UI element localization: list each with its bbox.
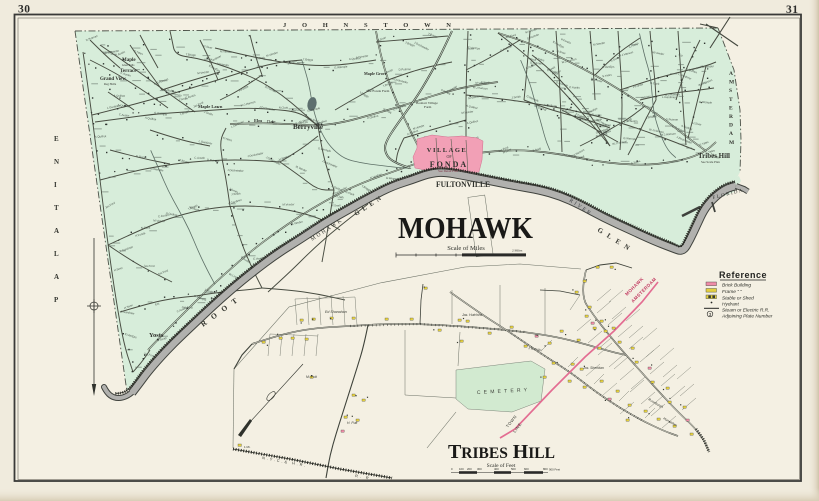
- svg-text:Jas.Ford: Jas.Ford: [143, 264, 154, 268]
- svg-text:1 Mi.: 1 Mi.: [244, 445, 251, 449]
- svg-text:T.Briggs: T.Briggs: [303, 57, 314, 62]
- svg-text:Reg Holla: Reg Holla: [104, 82, 117, 86]
- svg-text:MOHAWK: MOHAWK: [398, 211, 533, 245]
- svg-text:300: 300: [477, 467, 482, 471]
- svg-text:D.Putman: D.Putman: [398, 67, 411, 71]
- svg-text:Stable or Shed: Stable or Shed: [722, 296, 754, 302]
- svg-text:500: 500: [511, 467, 516, 471]
- svg-text:A: A: [54, 273, 59, 281]
- svg-text:E: E: [54, 135, 59, 143]
- svg-text:M.Veeder: M.Veeder: [153, 218, 165, 223]
- svg-text:400: 400: [494, 467, 499, 471]
- svg-text:Dale: Dale: [267, 119, 276, 124]
- svg-text:D.Putman: D.Putman: [666, 118, 679, 122]
- svg-text:Brick Building: Brick Building: [722, 283, 751, 289]
- svg-text:P: P: [54, 296, 59, 304]
- svg-text:I: I: [54, 181, 57, 189]
- svg-text:Terrace: Terrace: [120, 69, 137, 74]
- svg-text:M. Putt: M. Putt: [306, 375, 318, 379]
- svg-text:C.Austin: C.Austin: [194, 156, 205, 160]
- svg-text:C.Austin: C.Austin: [569, 85, 580, 90]
- svg-text:H. Putt: H. Putt: [347, 421, 358, 425]
- svg-text:Maple Grove: Maple Grove: [364, 71, 387, 76]
- svg-text:Tribes Hill: Tribes Hill: [698, 152, 730, 160]
- svg-text:Berryville: Berryville: [293, 123, 323, 131]
- svg-text:Yosts: Yosts: [149, 332, 164, 339]
- svg-text:Steam or Electric R.R.: Steam or Electric R.R.: [722, 308, 769, 314]
- svg-text:N.Clark: N.Clark: [279, 106, 289, 110]
- svg-text:A: A: [729, 131, 733, 137]
- svg-text:Ed Shanahan: Ed Shanahan: [325, 310, 347, 314]
- svg-text:FULTONVILLE: FULTONVILLE: [436, 180, 490, 189]
- svg-text:M.Veeder: M.Veeder: [702, 64, 714, 69]
- svg-text:2 Miles: 2 Miles: [512, 249, 523, 253]
- svg-text:M: M: [729, 140, 735, 146]
- svg-text:Maple Lawn: Maple Lawn: [198, 104, 223, 109]
- svg-text:Farm: Farm: [424, 105, 432, 109]
- svg-text:JOHNSTOWN: JOHNSTOWN: [283, 22, 465, 29]
- svg-text:800: 800: [543, 467, 548, 471]
- svg-text:Adjoining Plate Number: Adjoining Plate Number: [721, 314, 773, 320]
- svg-text:T: T: [54, 204, 59, 212]
- svg-text:A: A: [729, 71, 733, 77]
- svg-text:A.Quilhot: A.Quilhot: [349, 56, 361, 61]
- svg-text:Glen Falls: Glen Falls: [122, 63, 135, 67]
- svg-text:F.Snell: F.Snell: [481, 80, 490, 84]
- svg-text:31: 31: [786, 4, 799, 16]
- svg-text:S: S: [729, 88, 732, 94]
- svg-text:A: A: [54, 227, 59, 235]
- svg-text:Jas.Ford: Jas.Ford: [182, 305, 194, 310]
- svg-text:TRIBES HILL: TRIBES HILL: [448, 441, 555, 463]
- svg-text:200: 200: [467, 467, 472, 471]
- svg-text:OF: OF: [446, 154, 452, 159]
- svg-text:D: D: [729, 123, 733, 129]
- svg-text:N: N: [54, 158, 59, 166]
- svg-text:The Fonda Farm: The Fonda Farm: [366, 89, 390, 93]
- svg-text:M: M: [729, 80, 735, 86]
- svg-text:Elm: Elm: [254, 118, 262, 123]
- svg-text:A.Quilhot: A.Quilhot: [113, 94, 125, 98]
- svg-text:Jos. Sheridan: Jos. Sheridan: [582, 366, 604, 370]
- svg-text:A.Quilhot: A.Quilhot: [95, 134, 107, 139]
- svg-text:600: 600: [524, 467, 529, 471]
- svg-text:M.Veeder: M.Veeder: [282, 202, 294, 206]
- svg-text:See Scale Plan: See Scale Plan: [701, 160, 720, 164]
- svg-text:M.Veeder: M.Veeder: [220, 49, 232, 54]
- svg-text:W.J.Hanson: W.J.Hanson: [665, 92, 681, 96]
- svg-text:See Detail Plan: See Detail Plan: [438, 169, 458, 173]
- svg-text:100: 100: [459, 467, 464, 471]
- svg-text:30: 30: [18, 4, 31, 16]
- svg-text:Est.: Est.: [603, 130, 609, 135]
- svg-text:E.VanEps: E.VanEps: [602, 65, 615, 69]
- svg-text:Reference: Reference: [719, 270, 767, 280]
- svg-text:Frame ” ”: Frame ” ”: [722, 289, 742, 295]
- svg-text:Jas. Hutchins: Jas. Hutchins: [461, 313, 483, 317]
- svg-text:Scale of Miles: Scale of Miles: [447, 245, 485, 252]
- svg-text:VILLAGE: VILLAGE: [427, 147, 467, 154]
- svg-text:L: L: [54, 250, 59, 258]
- svg-text:N.Clark: N.Clark: [141, 226, 151, 230]
- svg-text:900 Feet: 900 Feet: [549, 468, 560, 472]
- svg-text:FONDA: FONDA: [430, 160, 468, 169]
- svg-text:Hydrant: Hydrant: [722, 302, 739, 308]
- svg-text:F.Snell: F.Snell: [332, 203, 341, 207]
- svg-text:E: E: [729, 105, 733, 111]
- svg-text:J.Dockstader: J.Dockstader: [227, 168, 244, 173]
- svg-text:T: T: [729, 97, 733, 103]
